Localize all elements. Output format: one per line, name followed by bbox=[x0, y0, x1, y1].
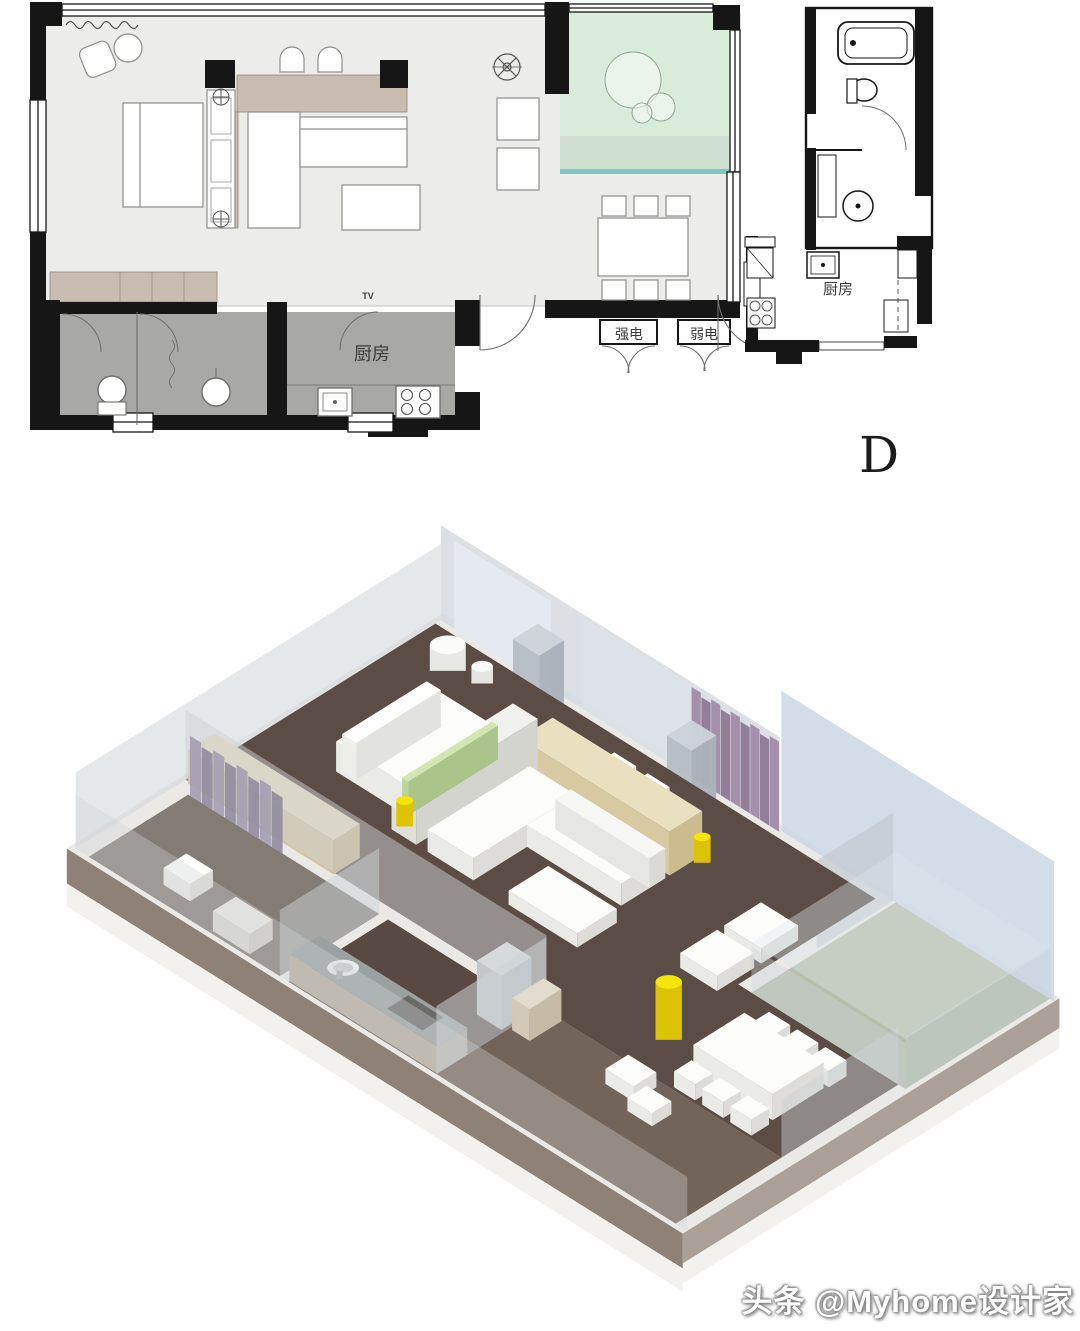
render-3d-svg bbox=[0, 490, 1080, 1331]
label-strong-electric: 强电 bbox=[615, 326, 643, 342]
floor-plan-svg: TV 厨房 强电 弱电 厨房 D bbox=[0, 0, 1080, 490]
label-kitchen-main: 厨房 bbox=[354, 344, 390, 364]
label-weak-electric: 弱电 bbox=[690, 326, 718, 342]
right-unit bbox=[744, 8, 932, 364]
label-tv: TV bbox=[362, 291, 374, 301]
render-3d-scene bbox=[67, 525, 1060, 1291]
label-kitchen-right-unit: 厨房 bbox=[823, 281, 853, 298]
watermark: 头条 @Myhome设计家 bbox=[741, 1276, 1074, 1321]
page: { "page": { "background": "#ffffff" }, "… bbox=[0, 0, 1080, 1331]
render-3d bbox=[0, 490, 1080, 1331]
unit-letter: D bbox=[859, 426, 899, 484]
floor-plan: TV 厨房 强电 弱电 厨房 D bbox=[0, 0, 1080, 490]
